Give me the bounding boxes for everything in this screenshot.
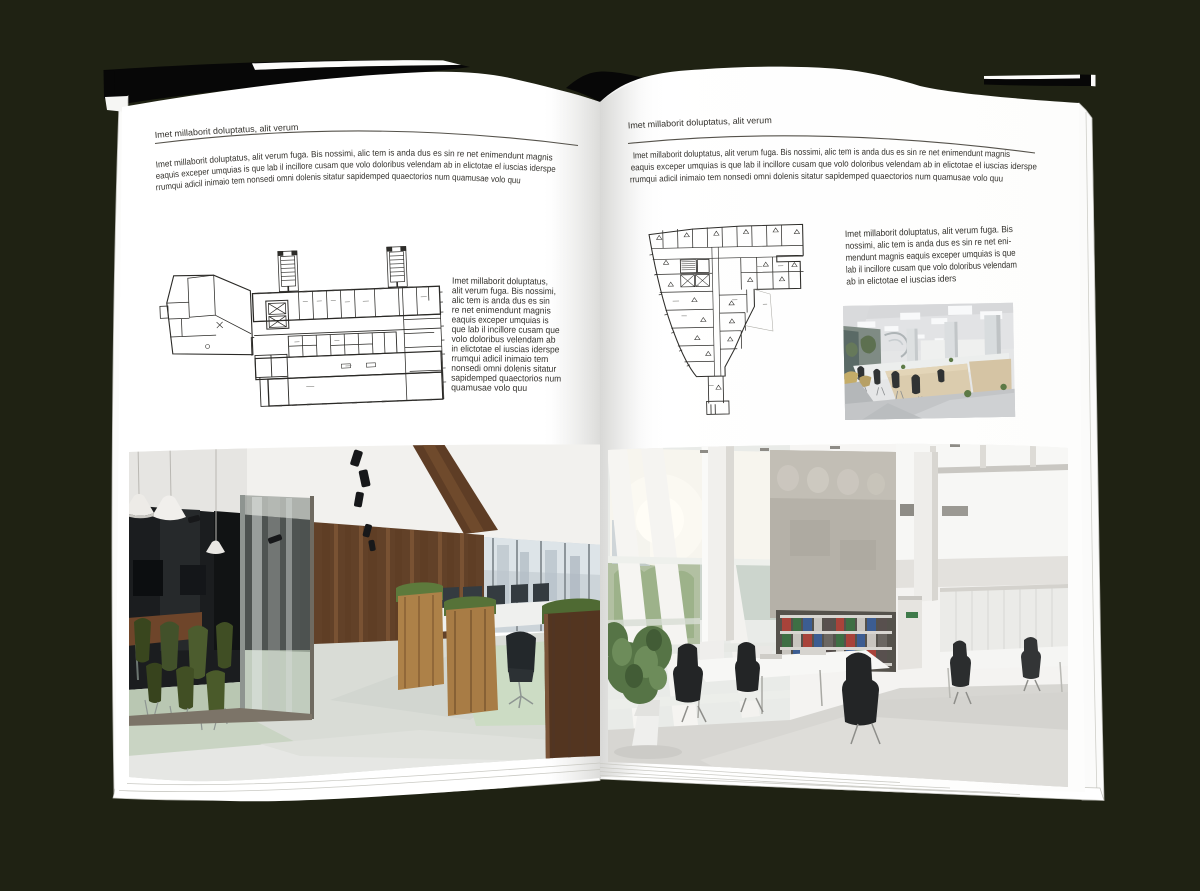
- svg-text:quamusae volo quu: quamusae volo quu: [451, 382, 527, 393]
